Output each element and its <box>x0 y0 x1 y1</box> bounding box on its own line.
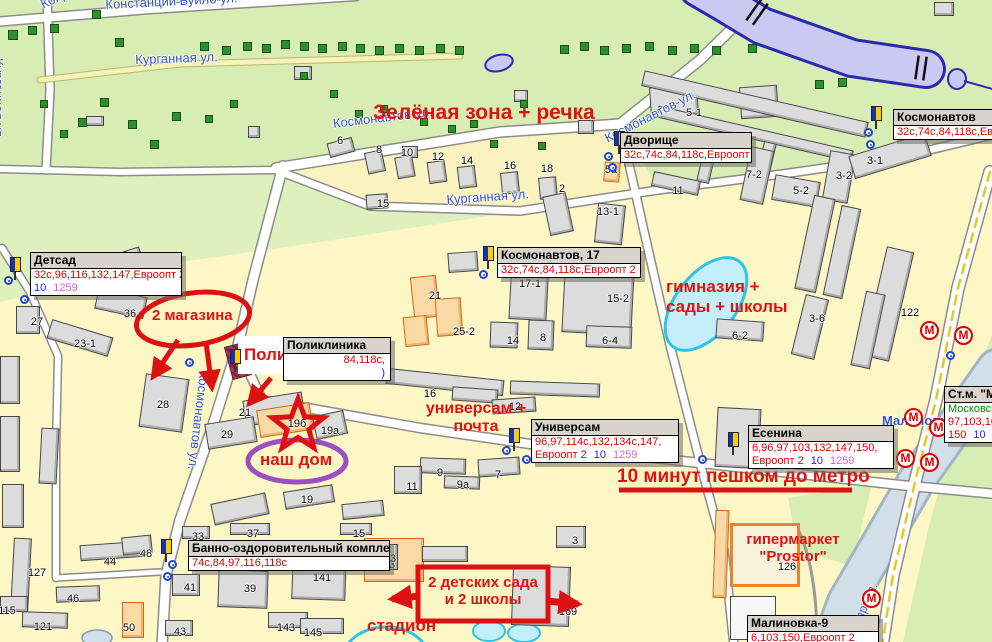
route-numbers: 10 <box>811 455 823 467</box>
stop-info-metro-station[interactable]: Ст.м. "Малиновка"Московская97,103,104,15… <box>944 386 992 443</box>
route-numbers: 10 <box>34 282 46 294</box>
stop-routes-line: Московская <box>945 403 992 416</box>
stop-routes-line: 32с,96,116,132,147,Евроопт 2 <box>31 269 181 282</box>
stop-routes-line: Евроопт 2101259 <box>749 455 893 468</box>
stop-title: Банно-оздоровительный комплекс <box>189 541 389 557</box>
stop-routes-line: 150101259 <box>945 429 992 442</box>
stop-routes-line: 74с,84,97,116,118с <box>189 557 389 570</box>
route-numbers: 1259 <box>53 282 77 294</box>
route-numbers: 150 <box>948 429 966 441</box>
route-numbers: 32с,74с,84,118с,Евроопт 2 <box>501 264 636 276</box>
route-numbers: 10 <box>594 449 606 461</box>
stop-title: Малиновка-9 <box>748 616 878 632</box>
route-numbers: 6,96,97,103,132,147,150, <box>752 442 877 454</box>
stop-title: Универсам <box>532 420 678 436</box>
stop-info-kosmonavtov[interactable]: Космонавтов32с,74с,84,118с,Евроопт 2 <box>893 109 992 140</box>
route-numbers: 1259 <box>830 455 854 467</box>
stop-info-universam[interactable]: Универсам96,97,114с,132,134с,147,Евроопт… <box>531 419 679 463</box>
stop-info-banya[interactable]: Банно-оздоровительный комплекс74с,84,97,… <box>188 540 390 571</box>
stop-info-kosmonavtov-17[interactable]: Космонавтов, 1732с,74с,84,118с,Евроопт 2 <box>497 247 641 278</box>
route-numbers: 10 <box>973 429 985 441</box>
route-numbers: 32с,74с,84,118с,Евроопт 2 <box>624 149 752 161</box>
stop-routes-line: 32с,74с,84,118с,Евроопт 2 <box>621 149 751 162</box>
stop-routes-line: 6,96,97,103,132,147,150, <box>749 442 893 455</box>
route-numbers: 96,97,114с,132,134с,147, <box>535 436 661 448</box>
route-numbers: 84,118с, <box>344 354 385 366</box>
route-numbers: 1259 <box>613 449 637 461</box>
stop-title: Дворище <box>621 133 751 149</box>
stop-routes-line: 84,118с, <box>284 354 390 367</box>
route-numbers: Евроопт 2 <box>752 455 804 467</box>
route-numbers: 6,103,150,Евроопт 2 <box>751 632 855 642</box>
stop-routes-line: 101259 <box>31 282 181 295</box>
route-numbers: Евроопт 2 <box>535 449 587 461</box>
stop-info-layer: Поликлиника84,118с,)Детсад32с,96,116,132… <box>0 0 992 642</box>
route-numbers: 74с,84,97,116,118с <box>192 557 287 569</box>
route-numbers: 32с,96,116,132,147,Евроопт 2 <box>34 269 182 281</box>
stop-routes-line: 32с,74с,84,118с,Евроопт 2 <box>498 264 640 277</box>
stop-routes-line: 6,103,150,Евроопт 2 <box>748 632 878 642</box>
stop-routes-line: ) <box>284 367 390 380</box>
stop-title: Есенина <box>749 426 893 442</box>
stop-title: Космонавтов <box>894 110 992 126</box>
route-numbers: ) <box>381 367 385 379</box>
stop-info-esenina[interactable]: Есенина6,96,97,103,132,147,150,Евроопт 2… <box>748 425 894 469</box>
stop-info-polyclinic-stop[interactable]: Поликлиника84,118с,) <box>283 337 391 381</box>
route-numbers: Московская <box>948 403 992 415</box>
stop-info-detsad[interactable]: Детсад32с,96,116,132,147,Евроопт 2101259 <box>30 252 182 296</box>
stop-title: Детсад <box>31 253 181 269</box>
stop-info-malinovka-9[interactable]: Малиновка-96,103,150,Евроопт 2 <box>747 615 879 642</box>
stop-title: Космонавтов, 17 <box>498 248 640 264</box>
map-canvas[interactable]: Кондр.Констанции Буйло ул.Курганная ул.К… <box>0 0 992 642</box>
stop-routes-line: Евроопт 2101259 <box>532 449 678 462</box>
stop-routes-line: 96,97,114с,132,134с,147, <box>532 436 678 449</box>
route-numbers: 32с,74с,84,118с,Евроопт 2 <box>897 126 992 138</box>
route-numbers: 97,103,104, <box>948 416 992 428</box>
stop-title: Поликлиника <box>284 338 390 354</box>
stop-title: Ст.м. "Малиновка" <box>945 387 992 403</box>
stop-info-dvorishche[interactable]: Дворище32с,74с,84,118с,Евроопт 2 <box>620 132 752 163</box>
stop-routes-line: 32с,74с,84,118с,Евроопт 2 <box>894 126 992 139</box>
stop-routes-line: 97,103,104, <box>945 416 992 429</box>
